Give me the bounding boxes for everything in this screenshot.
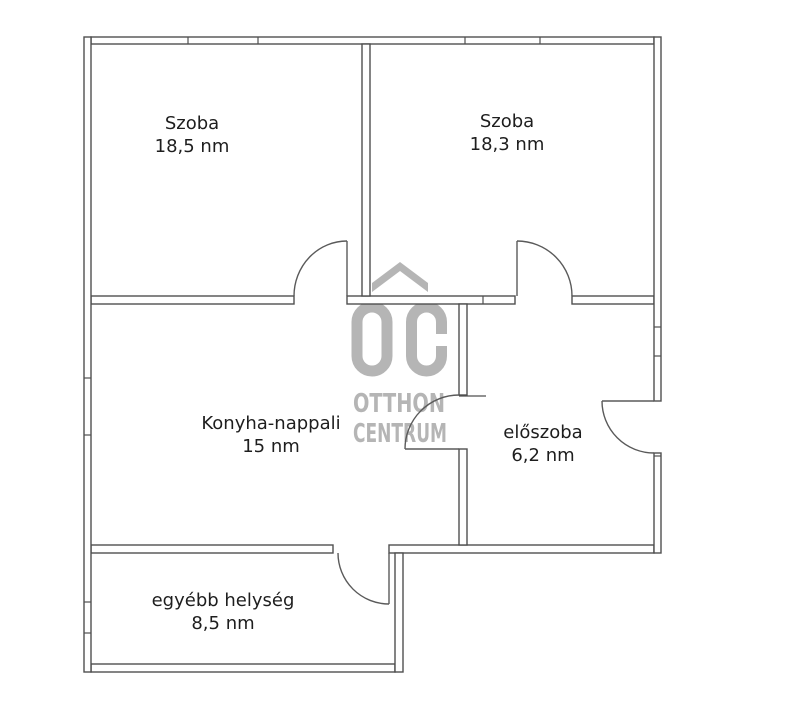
logo-letter-o-icon xyxy=(357,307,387,371)
room-label-eloszoba: előszoba 6,2 nm xyxy=(503,421,582,467)
logo-letter-c-icon xyxy=(412,307,442,371)
room-label-szoba-1: Szoba 18,5 nm xyxy=(155,112,230,158)
room-area: 15 nm xyxy=(201,435,340,458)
door-szoba-2 xyxy=(517,241,572,296)
wall-mid-right xyxy=(572,296,654,304)
room-label-egyebb-helyseg: egyébb helység 8,5 nm xyxy=(152,589,295,635)
logo-roof-icon xyxy=(372,262,428,292)
wall-left-exterior xyxy=(84,37,91,672)
room-area: 8,5 nm xyxy=(152,612,295,635)
room-name: egyébb helység xyxy=(152,589,295,612)
room-area: 18,5 nm xyxy=(155,135,230,158)
room-label-konyha-nappali: Konyha-nappali 15 nm xyxy=(201,412,340,458)
room-name: Konyha-nappali xyxy=(201,412,340,435)
room-name: Szoba xyxy=(470,110,545,133)
wall-right-exterior-upper xyxy=(654,37,661,401)
floor-plan: OTTHON CENTRUM xyxy=(0,0,800,709)
wall-right-exterior-lower xyxy=(654,453,661,553)
wall-divider-kitchen-lower xyxy=(459,449,467,545)
door-entrance xyxy=(602,401,654,453)
floor-plan-drawing: OTTHON CENTRUM xyxy=(0,0,800,709)
wall-bottom-main-right xyxy=(389,545,654,553)
watermark-line1: OTTHON xyxy=(353,389,445,419)
room-label-szoba-2: Szoba 18,3 nm xyxy=(470,110,545,156)
room-name: Szoba xyxy=(155,112,230,135)
wall-bottom-room-bottom xyxy=(91,664,395,672)
wall-divider-top-rooms xyxy=(362,44,370,296)
wall-bottom-room-right xyxy=(395,553,403,672)
wall-bottom-main-left xyxy=(91,545,333,553)
wall-mid-left xyxy=(91,296,294,304)
wall-divider-kitchen-upper xyxy=(459,304,467,395)
wall-mid-center xyxy=(347,296,515,304)
room-name: előszoba xyxy=(503,421,582,444)
room-area: 6,2 nm xyxy=(503,444,582,467)
watermark-line2: CENTRUM xyxy=(353,419,447,449)
door-szoba-1 xyxy=(294,241,347,296)
door-egyebb-helyseg xyxy=(338,553,389,604)
room-area: 18,3 nm xyxy=(470,133,545,156)
wall-top-exterior xyxy=(91,37,654,44)
